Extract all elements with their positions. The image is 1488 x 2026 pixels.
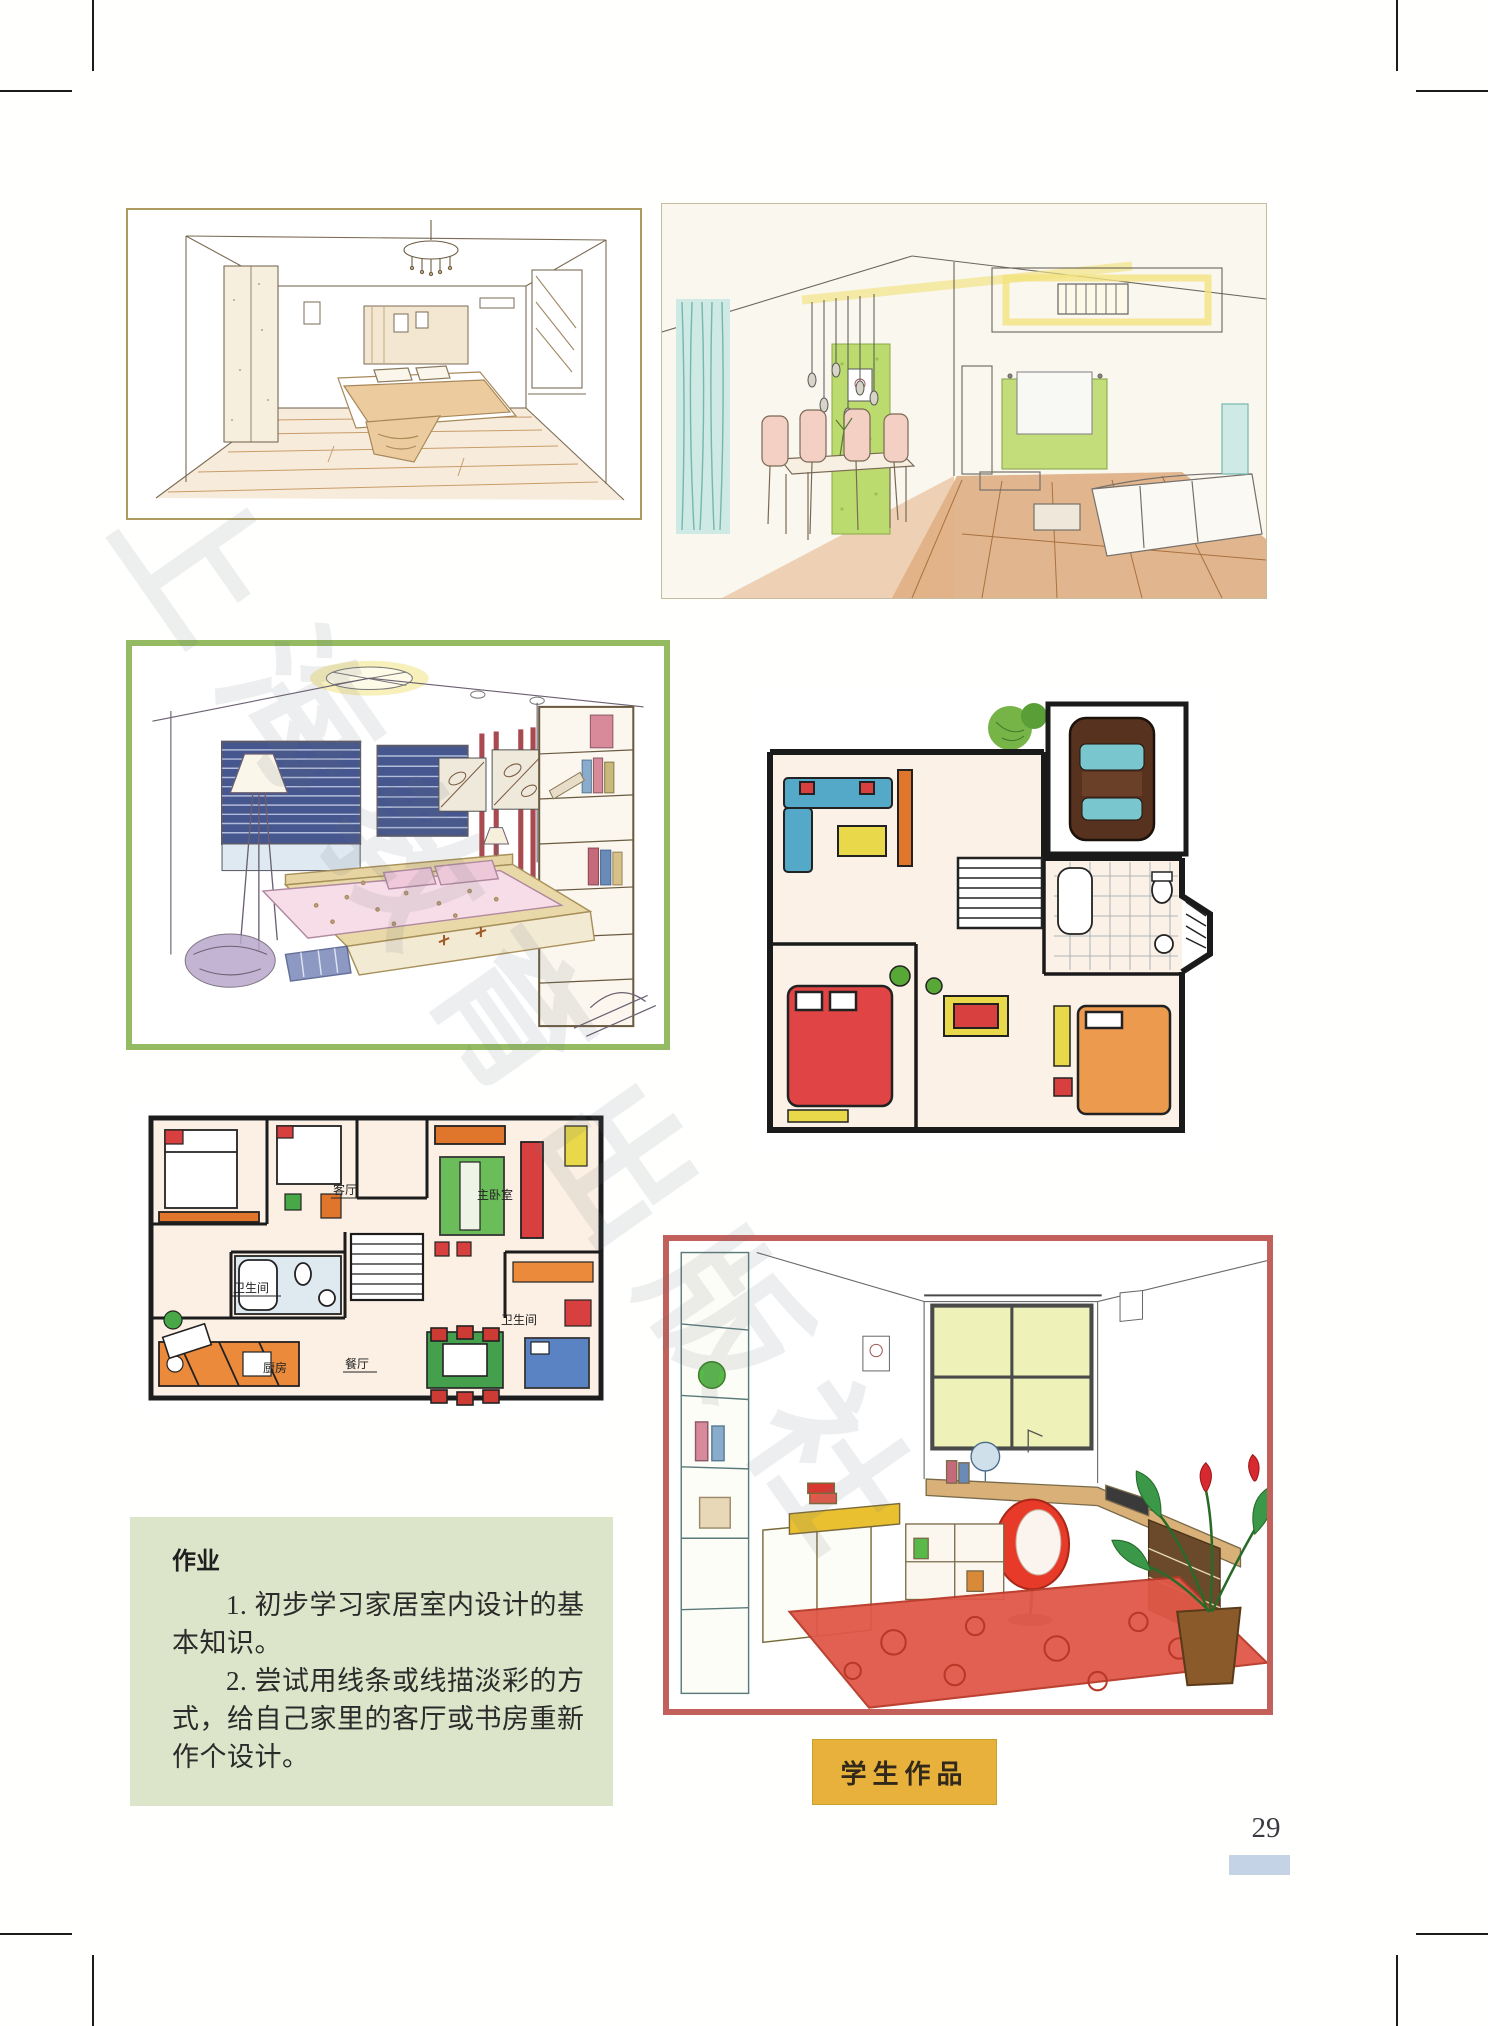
cube-shelf xyxy=(906,1524,1004,1600)
dining-set xyxy=(427,1326,503,1405)
label-living-room: 客厅 xyxy=(333,1182,357,1197)
assignment-line: 式，给自己家里的客厅或书房重新 xyxy=(172,1700,585,1738)
tree xyxy=(988,703,1047,750)
curtain-left xyxy=(676,299,730,534)
assignment-line: 1. 初步学习家居室内设计的基 xyxy=(172,1586,585,1624)
textbook-page: 上海教育出版社 xyxy=(0,0,1488,2026)
crop-mark-top-left-h xyxy=(0,90,72,92)
pouf xyxy=(185,934,275,987)
wardrobe-left xyxy=(224,266,278,442)
sketch-living-dining-room xyxy=(661,203,1267,599)
assignment-box: 作业 1. 初步学习家居室内设计的基 本知识。 2. 尝试用线条或线描淡彩的方 … xyxy=(130,1517,613,1806)
floor-plan-with-garage xyxy=(748,686,1222,1156)
ceiling xyxy=(662,256,1266,332)
floor-plan-car-canvas xyxy=(748,686,1222,1156)
assignment-line: 2. 尝试用线条或线描淡彩的方 xyxy=(172,1662,585,1700)
floor-plan-apartment: 客厅 主卧室 卫生间 卫生间 厨房 餐厅 xyxy=(135,1102,617,1414)
bedroom-sketch-canvas xyxy=(128,210,640,518)
corner-shelf xyxy=(681,1253,748,1694)
crop-mark-bottom-right-h xyxy=(1416,1933,1488,1935)
crop-mark-bottom-left-v xyxy=(92,1955,94,2026)
label-master-bedroom: 主卧室 xyxy=(477,1187,513,1202)
stairs xyxy=(958,858,1042,928)
assignment-line: 作个设计。 xyxy=(172,1738,585,1776)
living-room-canvas xyxy=(662,204,1266,598)
headboard-wall-decor xyxy=(304,298,514,364)
bookshelf xyxy=(539,707,633,1026)
assignment-title: 作业 xyxy=(172,1541,585,1576)
label-kitchen: 厨房 xyxy=(263,1360,287,1375)
stairs xyxy=(351,1234,423,1300)
label-bathroom-1: 卫生间 xyxy=(233,1281,269,1295)
label-bathroom-2: 卫生间 xyxy=(501,1313,537,1327)
student-works-label: 学生作品 xyxy=(812,1739,997,1805)
chandelier xyxy=(404,220,458,276)
crop-mark-top-right-v xyxy=(1396,0,1398,71)
garage xyxy=(1048,704,1186,854)
crop-mark-top-left-v xyxy=(92,0,94,71)
bedside-lamp xyxy=(484,828,509,857)
window-right xyxy=(528,270,586,394)
globe xyxy=(971,1442,1000,1471)
study-room-canvas xyxy=(669,1241,1267,1709)
floor-plan-wide-canvas: 客厅 主卧室 卫生间 卫生间 厨房 餐厅 xyxy=(135,1102,617,1414)
window xyxy=(924,1295,1102,1448)
crop-mark-bottom-right-v xyxy=(1396,1955,1398,2026)
sketch-bedroom-green-frame xyxy=(126,640,670,1050)
crop-mark-top-right-h xyxy=(1416,90,1488,92)
crop-mark-bottom-left-h xyxy=(0,1933,72,1935)
green-bedroom-canvas xyxy=(132,646,664,1044)
page-number: 29 xyxy=(1228,1812,1304,1845)
sketch-study-room-red-frame xyxy=(663,1235,1273,1715)
assignment-line: 本知识。 xyxy=(172,1624,585,1662)
page-number-accent-bar xyxy=(1229,1855,1290,1875)
sketch-bedroom-line-drawing xyxy=(126,208,642,520)
label-dining-room: 餐厅 xyxy=(345,1356,369,1371)
